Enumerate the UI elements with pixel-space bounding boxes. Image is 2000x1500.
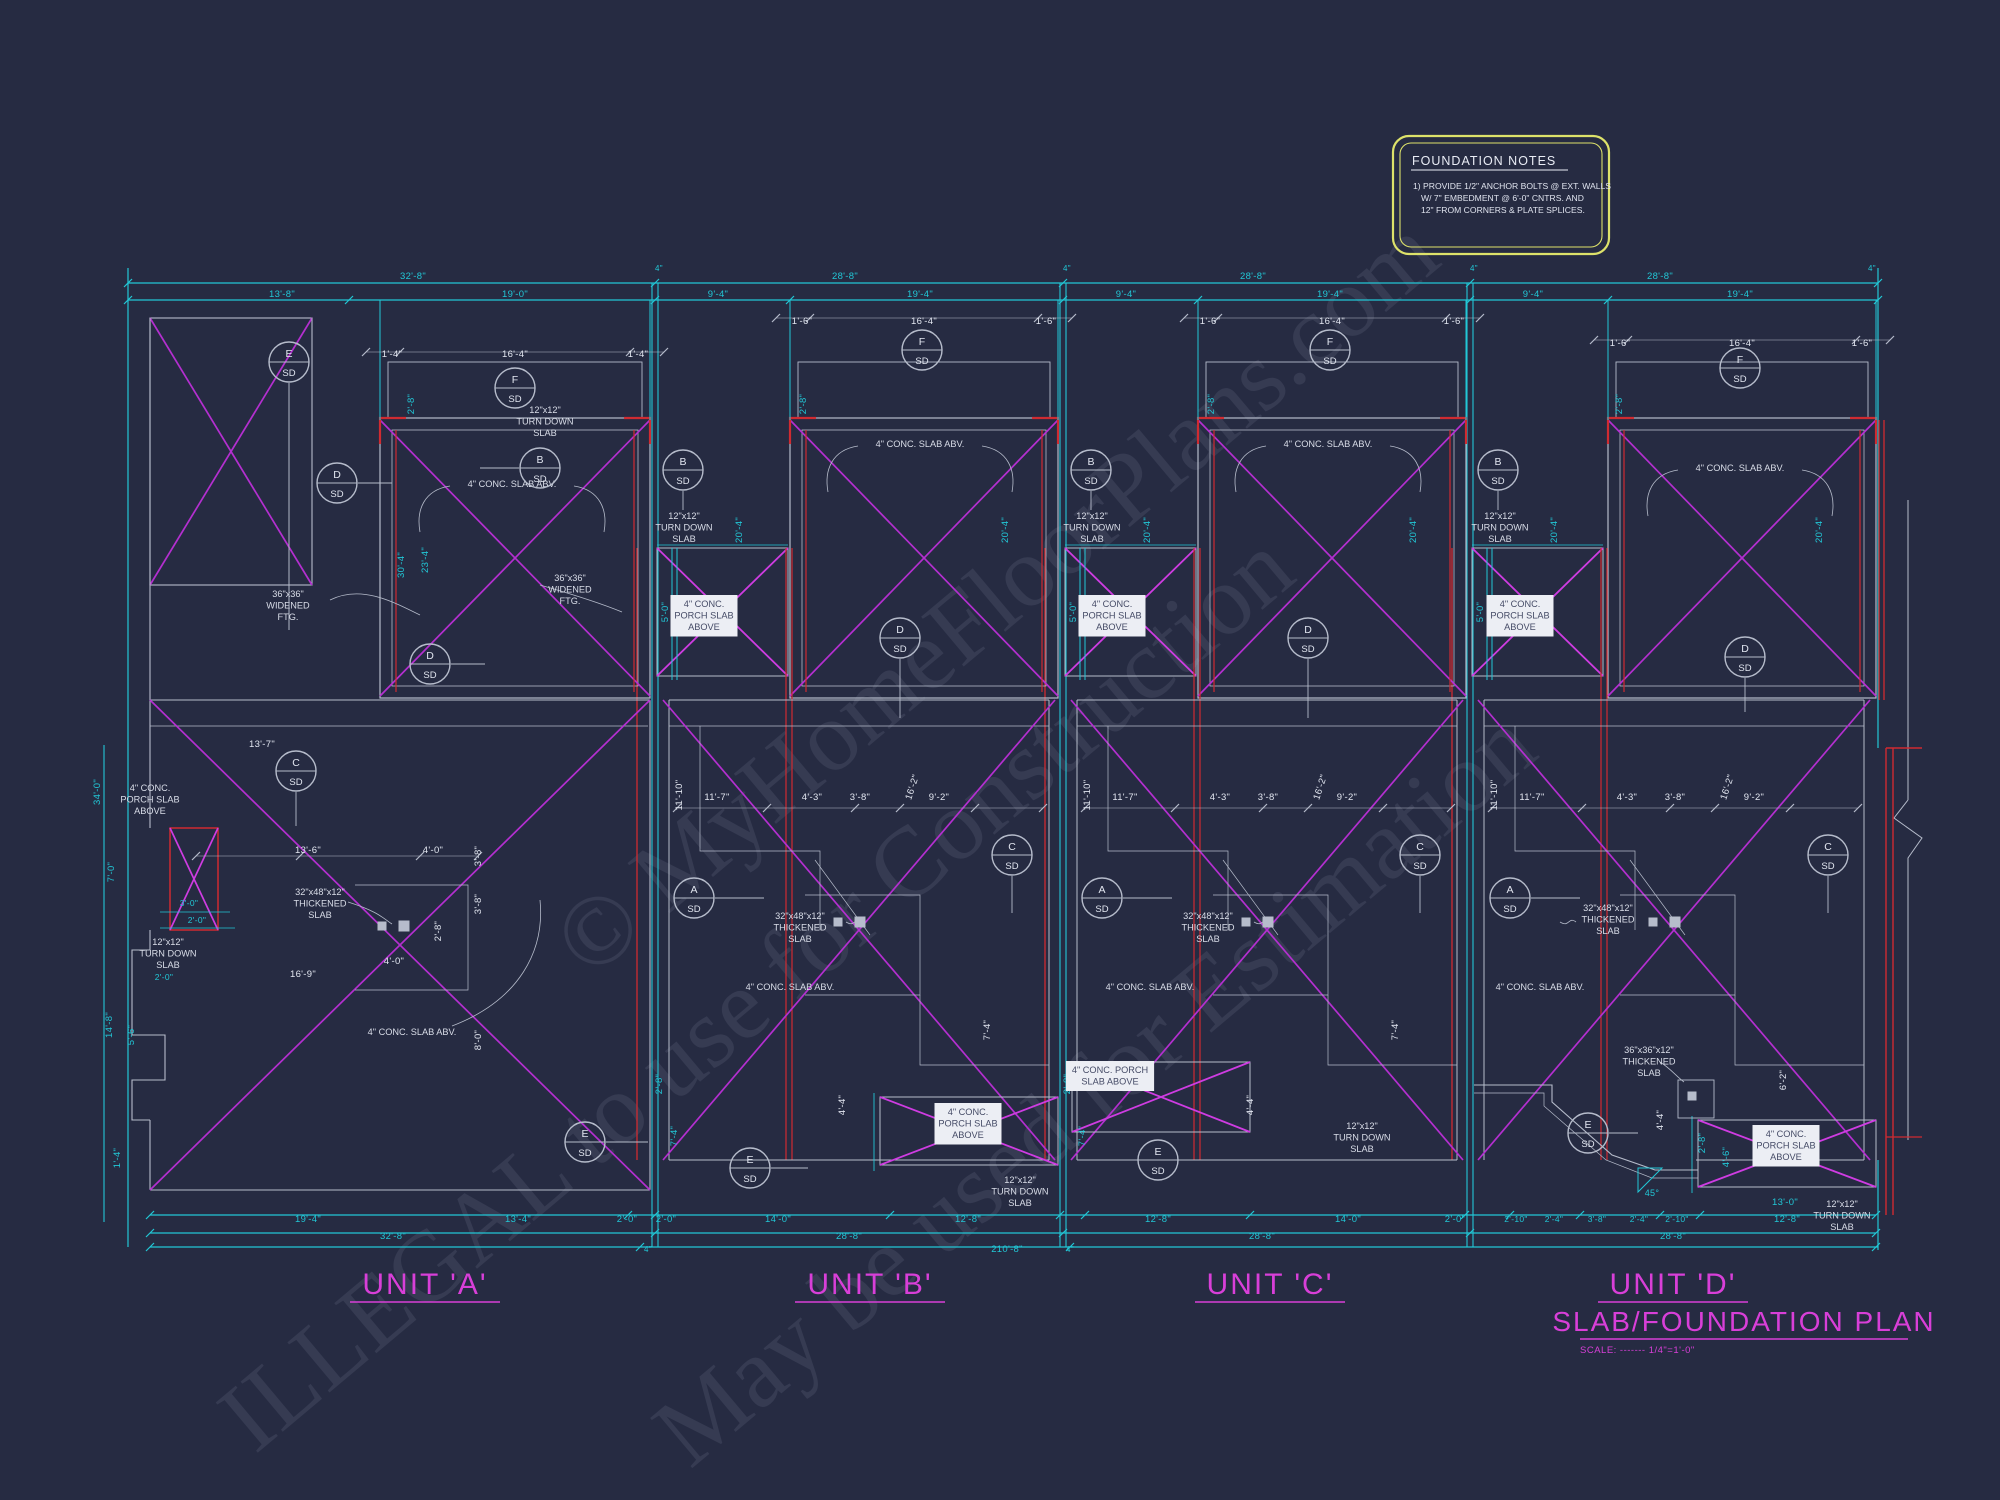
callout-letter: B — [536, 454, 543, 466]
callout-letter: D — [426, 650, 434, 662]
dim-label: 28'-8" — [1240, 271, 1266, 282]
cad-path — [330, 594, 420, 615]
detail-callout: DSD — [317, 463, 392, 503]
callout-sheet: SD — [743, 1174, 756, 1185]
unit-b-label: UNIT 'B' — [807, 1268, 932, 1301]
dim-label: 20'-4" — [734, 517, 745, 543]
dim-label: 5'-0" — [660, 602, 671, 622]
callout-sheet: SD — [687, 904, 700, 915]
dim-label: 1'-6" — [1444, 316, 1464, 327]
dim-label: 11'-10" — [674, 780, 685, 811]
dim-label: 2'-4" — [1630, 1214, 1648, 1224]
dim-label: 9'-2" — [1337, 792, 1357, 803]
callout-letter: E — [581, 1128, 588, 1140]
callout-sheet: SD — [1095, 904, 1108, 915]
dim-label: 7'-4" — [669, 1126, 680, 1146]
callout-sheet: SD — [533, 474, 546, 485]
callout-sheet: SD — [1084, 476, 1097, 487]
annotation: 32"x48"x12"THICKENEDSLAB — [293, 887, 346, 920]
dim-label: 2'-0" — [155, 972, 173, 982]
dim-label: 5'-0" — [1475, 602, 1486, 622]
cad-path — [1850, 418, 1876, 444]
callout-letter: D — [333, 469, 341, 481]
slab-pad — [1670, 917, 1681, 928]
callout-letter: E — [1584, 1119, 1591, 1131]
dim-label: 19'-4" — [295, 1214, 321, 1225]
dim-label: 16'-4" — [1319, 316, 1345, 327]
callout-letter: C — [1008, 841, 1016, 853]
detail-callout: ASD — [1490, 878, 1580, 918]
dim-label: 13'-4" — [505, 1214, 531, 1225]
annotation: 36"x36"WIDENEDFTG. — [266, 589, 310, 622]
callout-letter: C — [1824, 841, 1832, 853]
dim-label: 9'-4" — [1116, 289, 1136, 300]
detail-callout: ESD — [1138, 1140, 1216, 1180]
annotation: 12"x12"TURN DOWNSLAB — [1471, 511, 1528, 544]
annotation: 36"x36"x12"THICKENEDSLAB — [1622, 1045, 1675, 1078]
slab-foundation-plan-page: © MyHomeFloorPlans.comILLEGAL to use for… — [0, 0, 2000, 1500]
cad-path — [380, 418, 406, 444]
dim-label: 4'-6" — [1721, 1147, 1732, 1167]
notes-line: 1) PROVIDE 1/2" ANCHOR BOLTS @ EXT. WALL… — [1413, 181, 1611, 191]
detail-callout: DSD — [410, 644, 485, 684]
dim-label: 20'-4" — [1549, 517, 1560, 543]
dim-label: 2'-0" — [656, 1214, 676, 1225]
detail-callout: FSD — [495, 368, 535, 408]
dim-label: 19'-4" — [1727, 289, 1753, 300]
dim-label: 12'-8" — [1774, 1214, 1800, 1225]
dim-label: 2'-8" — [1206, 394, 1217, 414]
cad-path — [1440, 418, 1466, 444]
unit-c-label: UNIT 'C' — [1207, 1268, 1334, 1301]
dim-label: 4'-0" — [384, 956, 404, 967]
detail-callout: FSD — [902, 330, 942, 370]
dim-label: 14'-8" — [104, 1012, 115, 1038]
dim-label: 45° — [1645, 1188, 1660, 1198]
callout-sheet: SD — [1323, 356, 1336, 367]
cad-path — [790, 418, 816, 444]
dim-label: 4" — [1063, 264, 1071, 273]
callout-sheet: SD — [578, 1148, 591, 1159]
callout-sheet: SD — [289, 777, 302, 788]
dim-label: 20'-4" — [1814, 517, 1825, 543]
dim-label: 6'-2" — [1778, 1070, 1789, 1090]
callout-sheet: SD — [676, 476, 689, 487]
callout-letter: F — [1327, 336, 1333, 348]
dim-label: 32'-8" — [380, 1231, 406, 1242]
cad-path — [624, 418, 650, 444]
callout-sheet: SD — [330, 489, 343, 500]
dim-label: 20'-4" — [1142, 517, 1153, 543]
dim-label: 9'-4" — [708, 289, 728, 300]
dim-label: 28'-8" — [832, 271, 858, 282]
callout-letter: E — [1154, 1146, 1161, 1158]
dim-label: 1'-6" — [1610, 338, 1630, 349]
dim-label: 16'-9" — [290, 969, 316, 980]
dim-label: 4'-3" — [1210, 792, 1230, 803]
callout-letter: B — [1494, 456, 1501, 468]
dim-label: 30'-4" — [396, 552, 407, 578]
dim-label: 4'-3" — [1617, 792, 1637, 803]
dim-label: 4" — [655, 264, 663, 273]
callout-letter: F — [1737, 354, 1743, 366]
dim-label: 28'-8" — [1660, 1231, 1686, 1242]
cad-path — [1390, 446, 1421, 492]
annotation: 12"x12"TURN DOWNSLAB — [139, 937, 196, 970]
detail-callout: ASD — [1082, 878, 1172, 918]
dim-label: 3'-8" — [1258, 792, 1278, 803]
cad-path — [1032, 418, 1058, 444]
dim-label: 3'-8" — [850, 792, 870, 803]
detail-callout: FSD — [1720, 348, 1760, 388]
annotation: 32"x48"x12"THICKENEDSLAB — [1581, 903, 1634, 936]
dim-label: 11'-10" — [1489, 780, 1500, 811]
callout-sheet: SD — [1503, 904, 1516, 915]
detail-callout: CSD — [276, 751, 316, 826]
cad-path — [1620, 895, 1735, 995]
foundation-notes-box: FOUNDATION NOTES 1) PROVIDE 1/2" ANCHOR … — [1393, 136, 1611, 254]
drawing-scale: SCALE: ------- 1/4"=1'-0" — [1580, 1345, 1695, 1356]
slab-pad — [399, 921, 410, 932]
dim-label: 2'-8" — [1697, 1133, 1708, 1153]
dim-label: 4'-0" — [423, 845, 443, 856]
dim-label: 13'-6" — [295, 845, 321, 856]
dim-label: 2'-0" — [188, 915, 206, 925]
dim-label: 1'-6" — [1036, 316, 1056, 327]
dim-label: 1'-6" — [1852, 338, 1872, 349]
dim-label: 16'-2" — [1718, 773, 1736, 801]
callout-letter: A — [1098, 884, 1105, 896]
dim-label: 4'-4" — [837, 1095, 848, 1115]
dim-label: 3'-8" — [473, 846, 484, 866]
dim-label: 19'-4" — [1317, 289, 1343, 300]
dim-label: 14'-0" — [1335, 1214, 1361, 1225]
annotation: 4" CONC.PORCH SLABABOVE — [120, 783, 179, 816]
annotation: 4" CONC. PORCHSLAB ABOVE — [1072, 1065, 1148, 1087]
dim-label: 2'-8" — [406, 394, 417, 414]
dim-label: 3'-8" — [473, 894, 484, 914]
cad-path — [419, 486, 450, 532]
dim-label: 19'-4" — [907, 289, 933, 300]
annotation: 4" CONC. SLAB ABV. — [876, 439, 965, 449]
dim-label: 14'-0" — [765, 1214, 791, 1225]
annotation: 12"x12"TURN DOWNSLAB — [1333, 1121, 1390, 1154]
callout-letter: A — [690, 884, 697, 896]
dim-label: 4" — [1470, 264, 1478, 273]
dim-label: 13'-8" — [269, 289, 295, 300]
annotation: 4" CONC. SLAB ABV. — [746, 982, 835, 992]
detail-callout: BSD — [663, 450, 703, 510]
dim-label: 8'-0" — [473, 1030, 484, 1050]
detail-callout: CSD — [1808, 835, 1848, 913]
cad-path — [1108, 726, 1228, 930]
cad-path — [982, 446, 1013, 492]
dim-label: 28'-8" — [1249, 1231, 1275, 1242]
foundation-plan-canvas: © MyHomeFloorPlans.comILLEGAL to use for… — [0, 0, 2000, 1500]
annotation: 4" CONC. SLAB ABV. — [1696, 463, 1785, 473]
title-block: UNIT 'A' UNIT 'B' UNIT 'C' UNIT 'D' SLAB… — [350, 1268, 1936, 1356]
cad-path — [452, 900, 541, 1026]
dim-label: 11'-7" — [704, 792, 729, 803]
callout-letter: E — [746, 1154, 753, 1166]
dim-label: 11'-7" — [1519, 792, 1544, 803]
detail-callout: DSD — [1288, 618, 1328, 718]
dim-label: 1'-4" — [112, 1148, 123, 1168]
dim-label: 7'-4" — [1390, 1020, 1401, 1040]
dim-label: 2'-8" — [798, 394, 809, 414]
slab-pad — [1688, 1092, 1697, 1101]
callout-sheet: SD — [282, 368, 295, 379]
cad-path — [1894, 800, 1922, 878]
dim-label: 7'-4" — [982, 1020, 993, 1040]
slab-pad — [378, 922, 387, 931]
slab-pad — [834, 918, 843, 927]
dim-label: 1'-4" — [382, 349, 402, 360]
dim-label: 5'-0" — [1068, 602, 1079, 622]
annotation: 4" CONC. SLAB ABV. — [1106, 982, 1195, 992]
slab-pad — [1649, 918, 1658, 927]
dim-label: 11'-10" — [1082, 780, 1093, 811]
dim-label: 12'-8" — [955, 1214, 981, 1225]
dim-label: 9'-2" — [1744, 792, 1764, 803]
detail-callout: ESD — [269, 342, 309, 630]
cad-path — [348, 902, 392, 924]
dim-label: 1'-4" — [628, 349, 648, 360]
detail-callout: BSD — [1478, 450, 1518, 510]
unit-a-label: UNIT 'A' — [362, 1268, 487, 1301]
cad-path — [355, 885, 468, 990]
cad-path — [1474, 1093, 1698, 1178]
dim-label: 20'-4" — [1408, 517, 1419, 543]
callout-letter: D — [896, 624, 904, 636]
drawing-title: SLAB/FOUNDATION PLAN — [1552, 1306, 1935, 1337]
dim-label: 28'-8" — [1647, 271, 1673, 282]
dim-label: 9'-2" — [929, 792, 949, 803]
dim-label: 3'-8" — [1588, 1214, 1606, 1224]
dim-label: 4" — [1066, 1245, 1074, 1254]
dim-label: 1'-6" — [1200, 316, 1220, 327]
dim-label: 7'-4" — [1077, 1126, 1088, 1146]
dim-label: 2'-10" — [1504, 1214, 1527, 1224]
dim-label: 3'-0" — [180, 898, 198, 908]
dim-label: 2'-8" — [1614, 394, 1625, 414]
dim-label: 20'-4" — [1000, 517, 1011, 543]
callout-letter: B — [679, 456, 686, 468]
slab-pad — [1242, 918, 1251, 927]
dim-label: 11'-7" — [1112, 792, 1137, 803]
callout-letter: B — [1087, 456, 1094, 468]
dim-label: 16'-2" — [1311, 773, 1329, 801]
callout-letter: A — [1506, 884, 1513, 896]
callout-sheet: SD — [1301, 644, 1314, 655]
dim-label: 2'-4" — [1545, 1214, 1563, 1224]
detail-callout: FSD — [1310, 330, 1350, 370]
notes-line: 12" FROM CORNERS & PLATE SPLICES. — [1421, 205, 1585, 215]
callout-sheet: SD — [508, 394, 521, 405]
dim-label: 28'-8" — [836, 1231, 862, 1242]
dim-label: 2'-10" — [1665, 1214, 1688, 1224]
dim-label: 2'-0" — [617, 1214, 637, 1225]
callout-letter: C — [1416, 841, 1424, 853]
cad-path — [1802, 470, 1833, 516]
cad-path — [1608, 418, 1634, 444]
dim-label: 2'-0" — [1445, 1214, 1465, 1225]
slab-pad — [1263, 917, 1274, 928]
dim-label: 23'-4" — [420, 547, 431, 573]
cad-path — [1560, 920, 1576, 923]
dim-label: 13'-7" — [249, 739, 275, 750]
annotation: 36"x36"WIDENEDFTG. — [548, 573, 592, 606]
callout-letter: D — [1741, 643, 1749, 655]
slab-pad — [855, 917, 866, 928]
notes-line: W/ 7" EMBEDMENT @ 6'-0" CNTRS. AND — [1421, 193, 1584, 203]
dim-label: 210'-8" — [991, 1244, 1023, 1255]
dim-label: 2'-8" — [433, 921, 444, 941]
dim-label: 12'-8" — [1145, 1214, 1171, 1225]
dim-label: 16'-4" — [911, 316, 937, 327]
callout-letter: D — [1304, 624, 1312, 636]
annotation: 12"x12"TURN DOWNSLAB — [1813, 1199, 1870, 1232]
dim-label: 4'-4" — [1245, 1095, 1256, 1115]
annotation: 4" CONC. SLAB ABV. — [1284, 439, 1373, 449]
annotation: 4" CONC. SLAB ABV. — [368, 1027, 457, 1037]
dim-label: 5'-6" — [126, 1025, 137, 1045]
dim-label: 9'-4" — [1523, 289, 1543, 300]
dim-label: 19'-0" — [502, 289, 528, 300]
callout-sheet: SD — [1821, 861, 1834, 872]
dim-label: 2'-8" — [654, 1074, 665, 1094]
annotation: 4" CONC. SLAB ABV. — [1496, 982, 1585, 992]
callout-sheet: SD — [1491, 476, 1504, 487]
dim-label: 3'-8" — [1665, 792, 1685, 803]
callout-sheet: SD — [915, 356, 928, 367]
detail-callout: ESD — [1568, 1113, 1638, 1153]
unit-d-label: UNIT 'D' — [1610, 1268, 1737, 1301]
callout-letter: F — [512, 374, 518, 386]
annotation: 12"x12"TURN DOWNSLAB — [655, 511, 712, 544]
callout-letter: C — [292, 757, 300, 769]
dim-label: 4'-3" — [802, 792, 822, 803]
callout-sheet: SD — [1151, 1166, 1164, 1177]
cad-path — [1735, 995, 1864, 1065]
dim-label: 32'-8" — [400, 271, 426, 282]
dim-label: 7'-0" — [106, 862, 117, 882]
callout-letter: F — [919, 336, 925, 348]
dim-label: 16'-4" — [502, 349, 528, 360]
cad-rect — [1616, 362, 1868, 418]
dim-label: 1'-6" — [792, 316, 812, 327]
callout-sheet: SD — [1005, 861, 1018, 872]
dim-label: 34'-0" — [92, 779, 103, 805]
dim-label: 16'-4" — [1729, 338, 1755, 349]
dim-label: 4" — [644, 1245, 652, 1254]
callout-sheet: SD — [1733, 374, 1746, 385]
callout-sheet: SD — [1738, 663, 1751, 674]
callout-sheet: SD — [1413, 861, 1426, 872]
cad-rect — [388, 362, 642, 418]
dim-label: 4" — [1868, 264, 1876, 273]
notes-title: FOUNDATION NOTES — [1412, 154, 1556, 168]
dim-label: 13'-0" — [1772, 1197, 1798, 1208]
callout-sheet: SD — [1581, 1139, 1594, 1150]
detail-callout: DSD — [1725, 637, 1765, 712]
detail-callout: ESD — [730, 1148, 808, 1188]
callout-letter: E — [285, 348, 292, 360]
callout-sheet: SD — [893, 644, 906, 655]
callout-sheet: SD — [423, 670, 436, 681]
dim-label: 4'-4" — [1655, 1110, 1666, 1130]
annotation: 12"x12"TURN DOWNSLAB — [516, 405, 573, 438]
